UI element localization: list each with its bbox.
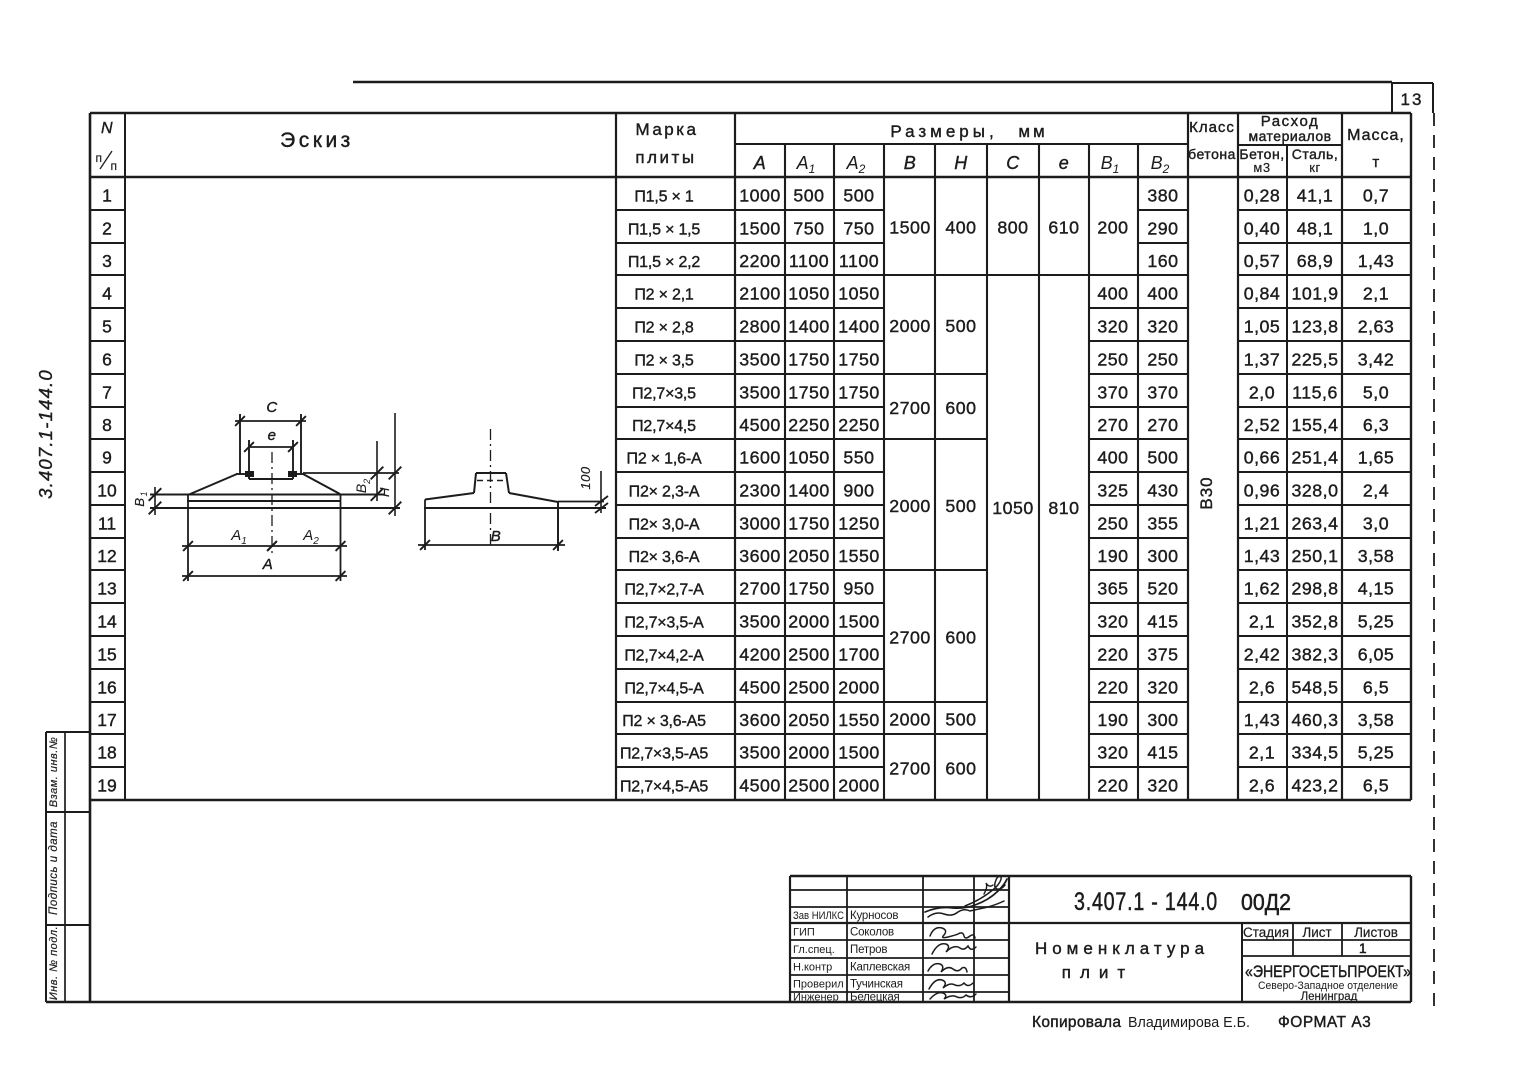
svg-text:18: 18 [97,742,116,762]
svg-text:Курносов: Курносов [850,910,898,922]
svg-text:3,42: 3,42 [1358,349,1395,369]
svg-text:5: 5 [102,316,112,336]
svg-text:1750: 1750 [788,349,830,369]
svg-text:365: 365 [1097,578,1128,598]
svg-text:e: e [1059,153,1070,173]
svg-text:Копировала: Копировала [1032,1014,1121,1031]
svg-text:П2,7×3,5-А5: П2,7×3,5-А5 [620,745,708,762]
svg-text:6,5: 6,5 [1363,775,1389,795]
svg-text:810: 810 [1048,498,1079,518]
svg-text:1050: 1050 [788,447,830,467]
svg-text:В30: В30 [1197,476,1216,509]
svg-text:8: 8 [102,415,112,435]
svg-text:298,8: 298,8 [1292,578,1339,598]
svg-text:A: A [753,153,767,173]
svg-text:460,3: 460,3 [1292,710,1339,730]
svg-text:115,6: 115,6 [1292,382,1338,402]
svg-text:68,9: 68,9 [1297,251,1334,271]
svg-text:Гл.спец.: Гл.спец. [793,944,835,956]
svg-text:материалов: материалов [1248,128,1331,144]
svg-text:500: 500 [1147,447,1178,467]
svg-text:270: 270 [1097,415,1128,435]
svg-text:0,28: 0,28 [1244,185,1281,205]
svg-text:423,2: 423,2 [1292,775,1339,795]
svg-text:600: 600 [945,758,976,778]
svg-text:400: 400 [1097,283,1128,303]
svg-text:250: 250 [1097,513,1128,533]
svg-text:200: 200 [1097,217,1128,237]
svg-text:41,1: 41,1 [1297,185,1334,205]
svg-text:1750: 1750 [838,349,880,369]
svg-text:2050: 2050 [788,710,830,730]
svg-text:B: B [132,497,147,506]
svg-text:Листов: Листов [1354,925,1398,940]
svg-text:3000: 3000 [739,513,781,533]
svg-text:1: 1 [1359,940,1367,956]
svg-text:250: 250 [1097,349,1128,369]
svg-text:1,21: 1,21 [1244,513,1281,533]
svg-text:2,1: 2,1 [1249,742,1275,762]
svg-text:3500: 3500 [739,349,781,369]
svg-text:123,8: 123,8 [1292,316,1339,336]
svg-text:2250: 2250 [788,415,830,435]
svg-text:355: 355 [1147,513,1178,533]
svg-text:ГИП: ГИП [793,927,815,939]
svg-text:П2,7×3,5-А: П2,7×3,5-А [624,614,704,631]
svg-text:1,43: 1,43 [1358,251,1395,271]
svg-text:1700: 1700 [838,644,880,664]
svg-text:101,9: 101,9 [1292,283,1339,303]
svg-text:Взам. инв.№: Взам. инв.№ [48,737,60,807]
svg-text:900: 900 [843,480,874,500]
svg-text:430: 430 [1147,480,1178,500]
svg-text:13: 13 [1401,90,1424,109]
svg-text:Инженер: Инженер [793,992,839,1004]
svg-text:251,4: 251,4 [1292,447,1339,467]
svg-text:3.407.1 - 144.0: 3.407.1 - 144.0 [1074,888,1218,916]
svg-text:9: 9 [102,447,112,467]
svg-text:Инв. № подл.: Инв. № подл. [48,926,60,1000]
svg-text:3500: 3500 [739,382,781,402]
svg-text:П2,7×2,7-А: П2,7×2,7-А [624,581,704,598]
svg-text:190: 190 [1097,546,1128,566]
svg-text:325: 325 [1097,480,1128,500]
svg-text:2700: 2700 [889,398,931,418]
svg-text:П2 × 1,6-А: П2 × 1,6-А [627,450,702,467]
svg-text:290: 290 [1147,218,1178,238]
svg-text:5,0: 5,0 [1363,382,1389,402]
svg-text:334,5: 334,5 [1292,742,1339,762]
svg-text:П2 × 3,5: П2 × 3,5 [634,352,694,369]
svg-text:16: 16 [97,677,116,697]
svg-text:2700: 2700 [889,758,931,778]
svg-text:00Д2: 00Д2 [1241,889,1291,915]
svg-text:270: 270 [1147,415,1178,435]
svg-text:1050: 1050 [992,498,1034,518]
svg-text:19: 19 [97,775,116,795]
svg-text:4200: 4200 [739,644,781,664]
svg-text:П2,7×4,5-А: П2,7×4,5-А [624,680,704,697]
svg-text:Зав НИЛКС: Зав НИЛКС [793,910,844,922]
svg-text:2200: 2200 [739,251,781,271]
svg-text:1: 1 [102,185,112,205]
svg-text:370: 370 [1097,382,1128,402]
svg-text:1050: 1050 [788,283,830,303]
svg-text:1500: 1500 [739,218,781,238]
svg-text:1500: 1500 [838,611,880,631]
svg-text:Проверил: Проверил [793,979,844,991]
svg-text:190: 190 [1097,710,1128,730]
svg-text:Белецкая: Белецкая [850,992,900,1004]
svg-text:«ЭНЕРГОСЕТЬПРОЕКТ»: «ЭНЕРГОСЕТЬПРОЕКТ» [1245,962,1411,981]
svg-text:1,65: 1,65 [1358,447,1395,467]
svg-text:A: A [262,556,274,573]
svg-text:600: 600 [945,627,976,647]
svg-text:1,43: 1,43 [1244,710,1281,730]
svg-text:2,63: 2,63 [1358,316,1395,336]
svg-text:2,6: 2,6 [1249,775,1275,795]
svg-text:1,05: 1,05 [1244,316,1281,336]
svg-text:415: 415 [1147,611,1178,631]
svg-text:C: C [1006,153,1020,173]
svg-text:400: 400 [945,217,976,237]
svg-text:2000: 2000 [838,677,880,697]
svg-text:5,25: 5,25 [1358,611,1395,631]
svg-text:5,25: 5,25 [1358,742,1395,762]
svg-text:0,40: 0,40 [1244,218,1281,238]
svg-text:320: 320 [1147,677,1178,697]
svg-text:1000: 1000 [739,185,781,205]
svg-text:14: 14 [97,611,117,631]
svg-text:e: e [268,427,277,444]
svg-text:1400: 1400 [788,480,830,500]
svg-text:1600: 1600 [739,447,781,467]
svg-text:155,4: 155,4 [1292,415,1339,435]
svg-text:100: 100 [578,466,593,489]
svg-text:C: C [266,399,277,416]
svg-text:2,4: 2,4 [1363,480,1389,500]
svg-text:Тучинская: Тучинская [850,979,903,991]
svg-text:6,05: 6,05 [1358,644,1395,664]
svg-text:1100: 1100 [839,251,879,271]
svg-text:352,8: 352,8 [1292,611,1339,631]
svg-text:1050: 1050 [838,283,880,303]
svg-text:N: N [101,120,113,137]
svg-text:13: 13 [97,578,116,598]
svg-text:3600: 3600 [739,710,781,730]
svg-text:2050: 2050 [788,546,830,566]
svg-text:0,7: 0,7 [1363,185,1389,205]
svg-text:250,1: 250,1 [1292,546,1339,566]
svg-text:3.407.1-144.0: 3.407.1-144.0 [35,369,56,499]
svg-text:2700: 2700 [889,627,931,647]
svg-text:H: H [954,153,968,173]
svg-text:1550: 1550 [838,546,880,566]
svg-text:П2,7×4,5-А5: П2,7×4,5-А5 [620,778,708,795]
svg-text:Ленинград: Ленинград [1301,991,1358,1003]
svg-text:4500: 4500 [739,415,781,435]
svg-text:1750: 1750 [838,382,880,402]
svg-text:2300: 2300 [739,480,781,500]
svg-text:263,4: 263,4 [1292,513,1339,533]
svg-text:2,6: 2,6 [1249,677,1275,697]
svg-text:0,57: 0,57 [1244,251,1281,271]
svg-text:2,0: 2,0 [1249,382,1275,402]
svg-text:Номенклатура: Номенклатура [1035,939,1209,958]
svg-text:225,5: 225,5 [1292,349,1339,369]
svg-text:610: 610 [1048,217,1079,237]
svg-text:2700: 2700 [739,578,781,598]
svg-text:Лист: Лист [1302,925,1331,940]
svg-text:320: 320 [1147,316,1178,336]
svg-text:6,5: 6,5 [1363,677,1389,697]
svg-text:15: 15 [97,644,116,664]
svg-text:4,15: 4,15 [1358,578,1395,598]
svg-text:2500: 2500 [788,775,830,795]
svg-text:500: 500 [945,316,976,336]
svg-text:B: B [491,528,502,545]
svg-text:Масса,: Масса, [1347,127,1405,144]
svg-text:160: 160 [1147,251,1178,271]
svg-text:2100: 2100 [739,283,781,303]
svg-text:П2× 3,0-А: П2× 3,0-А [629,516,700,533]
svg-text:2000: 2000 [838,775,880,795]
svg-text:Н.контр: Н.контр [793,962,832,974]
svg-text:2500: 2500 [788,644,830,664]
svg-text:12: 12 [97,546,116,566]
svg-text:6: 6 [102,349,112,369]
svg-text:17: 17 [97,710,116,730]
svg-text:1750: 1750 [788,578,830,598]
svg-text:500: 500 [843,185,874,205]
svg-text:Стадия: Стадия [1243,925,1289,940]
svg-text:2000: 2000 [889,709,931,729]
svg-text:400: 400 [1097,447,1128,467]
svg-text:П2 × 3,6-А5: П2 × 3,6-А5 [622,713,706,730]
svg-text:300: 300 [1147,710,1178,730]
svg-text:48,1: 48,1 [1297,218,1334,238]
svg-text:мм: мм [1018,122,1047,141]
svg-text:Эскиз: Эскиз [280,129,354,152]
svg-text:320: 320 [1097,611,1128,631]
svg-text:220: 220 [1097,644,1128,664]
svg-text:3500: 3500 [739,611,781,631]
svg-text:1500: 1500 [889,217,931,237]
svg-text:3500: 3500 [739,742,781,762]
svg-text:п: п [96,151,103,165]
svg-text:4500: 4500 [739,677,781,697]
svg-text:320: 320 [1097,742,1128,762]
svg-text:1,62: 1,62 [1244,578,1281,598]
svg-text:1500: 1500 [838,742,880,762]
svg-text:2,1: 2,1 [1363,283,1389,303]
svg-text:Размеры,: Размеры, [890,122,997,141]
svg-text:1750: 1750 [788,382,830,402]
svg-text:520: 520 [1147,578,1178,598]
svg-text:415: 415 [1147,742,1178,762]
svg-text:550: 550 [843,447,874,467]
svg-text:бетона: бетона [1188,146,1236,162]
svg-text:1400: 1400 [838,316,880,336]
svg-text:1100: 1100 [789,251,829,271]
svg-text:м3: м3 [1253,160,1270,175]
svg-text:1250: 1250 [838,513,880,533]
svg-text:П1,5 × 1,5: П1,5 × 1,5 [628,221,701,238]
svg-text:Соколов: Соколов [850,927,894,939]
svg-text:370: 370 [1147,382,1178,402]
svg-text:П2,7×4,2-А: П2,7×4,2-А [624,647,704,664]
svg-text:950: 950 [843,578,874,598]
svg-text:11: 11 [98,513,116,533]
svg-text:548,5: 548,5 [1292,677,1339,697]
svg-text:ФОРМАТ А3: ФОРМАТ А3 [1278,1014,1371,1031]
svg-text:600: 600 [945,398,976,418]
svg-text:плиты: плиты [635,148,696,167]
svg-text:400: 400 [1147,283,1178,303]
svg-text:Марка: Марка [635,120,698,139]
svg-text:Владимирова Е.Б.: Владимирова Е.Б. [1128,1014,1250,1031]
svg-text:П2 × 2,8: П2 × 2,8 [634,319,694,336]
svg-text:П2× 3,6-А: П2× 3,6-А [629,549,700,566]
svg-text:500: 500 [945,709,976,729]
svg-text:П1,5 × 2,2: П1,5 × 2,2 [628,254,701,271]
svg-text:0,84: 0,84 [1244,283,1281,303]
svg-text:п: п [111,159,118,173]
svg-text:2500: 2500 [788,677,830,697]
svg-text:Подпись и дата: Подпись и дата [48,821,60,915]
svg-text:2000: 2000 [889,316,931,336]
svg-text:750: 750 [793,218,824,238]
svg-text:2250: 2250 [838,415,880,435]
svg-text:плит: плит [1062,963,1134,982]
svg-text:375: 375 [1147,644,1178,664]
svg-text:1,43: 1,43 [1244,546,1281,566]
svg-text:Каплевская: Каплевская [850,962,910,974]
svg-text:2,52: 2,52 [1244,415,1281,435]
svg-text:800: 800 [997,217,1028,237]
svg-text:250: 250 [1147,349,1178,369]
svg-text:380: 380 [1147,185,1178,205]
svg-text:10: 10 [97,480,117,500]
svg-text:4: 4 [102,283,112,303]
svg-text:2800: 2800 [739,316,781,336]
svg-text:1,0: 1,0 [1363,218,1389,238]
svg-text:Петров: Петров [850,944,887,956]
svg-text:320: 320 [1097,316,1128,336]
svg-text:2,1: 2,1 [1249,611,1275,631]
svg-text:1400: 1400 [788,316,830,336]
svg-text:П2 × 2,1: П2 × 2,1 [634,286,694,303]
svg-text:3600: 3600 [739,546,781,566]
svg-text:H: H [377,487,392,497]
svg-text:2000: 2000 [889,496,931,516]
svg-text:750: 750 [843,218,874,238]
svg-text:П2,7×3,5: П2,7×3,5 [632,385,696,402]
svg-text:0,96: 0,96 [1244,480,1281,500]
svg-text:382,3: 382,3 [1292,644,1339,664]
svg-text:кг: кг [1309,160,1320,175]
svg-text:П2× 2,3-А: П2× 2,3-А [629,483,700,500]
svg-text:1,37: 1,37 [1244,349,1281,369]
svg-text:1550: 1550 [838,710,880,730]
svg-text:220: 220 [1097,775,1128,795]
svg-text:0,66: 0,66 [1244,447,1281,467]
svg-text:П2,7×4,5: П2,7×4,5 [632,418,696,435]
svg-text:1: 1 [139,491,149,496]
svg-text:т: т [1372,154,1379,171]
svg-text:300: 300 [1147,546,1178,566]
svg-text:500: 500 [793,185,824,205]
svg-text:3,0: 3,0 [1363,513,1389,533]
svg-text:2: 2 [102,218,112,238]
svg-text:220: 220 [1097,677,1128,697]
svg-text:4500: 4500 [739,775,781,795]
svg-text:320: 320 [1147,775,1178,795]
svg-text:6,3: 6,3 [1363,415,1389,435]
svg-text:3,58: 3,58 [1358,546,1395,566]
svg-text:3: 3 [102,251,112,271]
svg-text:500: 500 [945,496,976,516]
svg-text:1750: 1750 [788,513,830,533]
svg-text:B: B [904,153,917,173]
svg-text:2000: 2000 [788,611,830,631]
svg-text:2000: 2000 [788,742,830,762]
svg-text:3,58: 3,58 [1358,710,1395,730]
svg-text:2,42: 2,42 [1244,644,1281,664]
svg-text:328,0: 328,0 [1292,480,1339,500]
svg-text:П1,5 × 1: П1,5 × 1 [634,188,694,205]
svg-text:7: 7 [102,382,112,402]
svg-text:Класс: Класс [1189,119,1235,136]
